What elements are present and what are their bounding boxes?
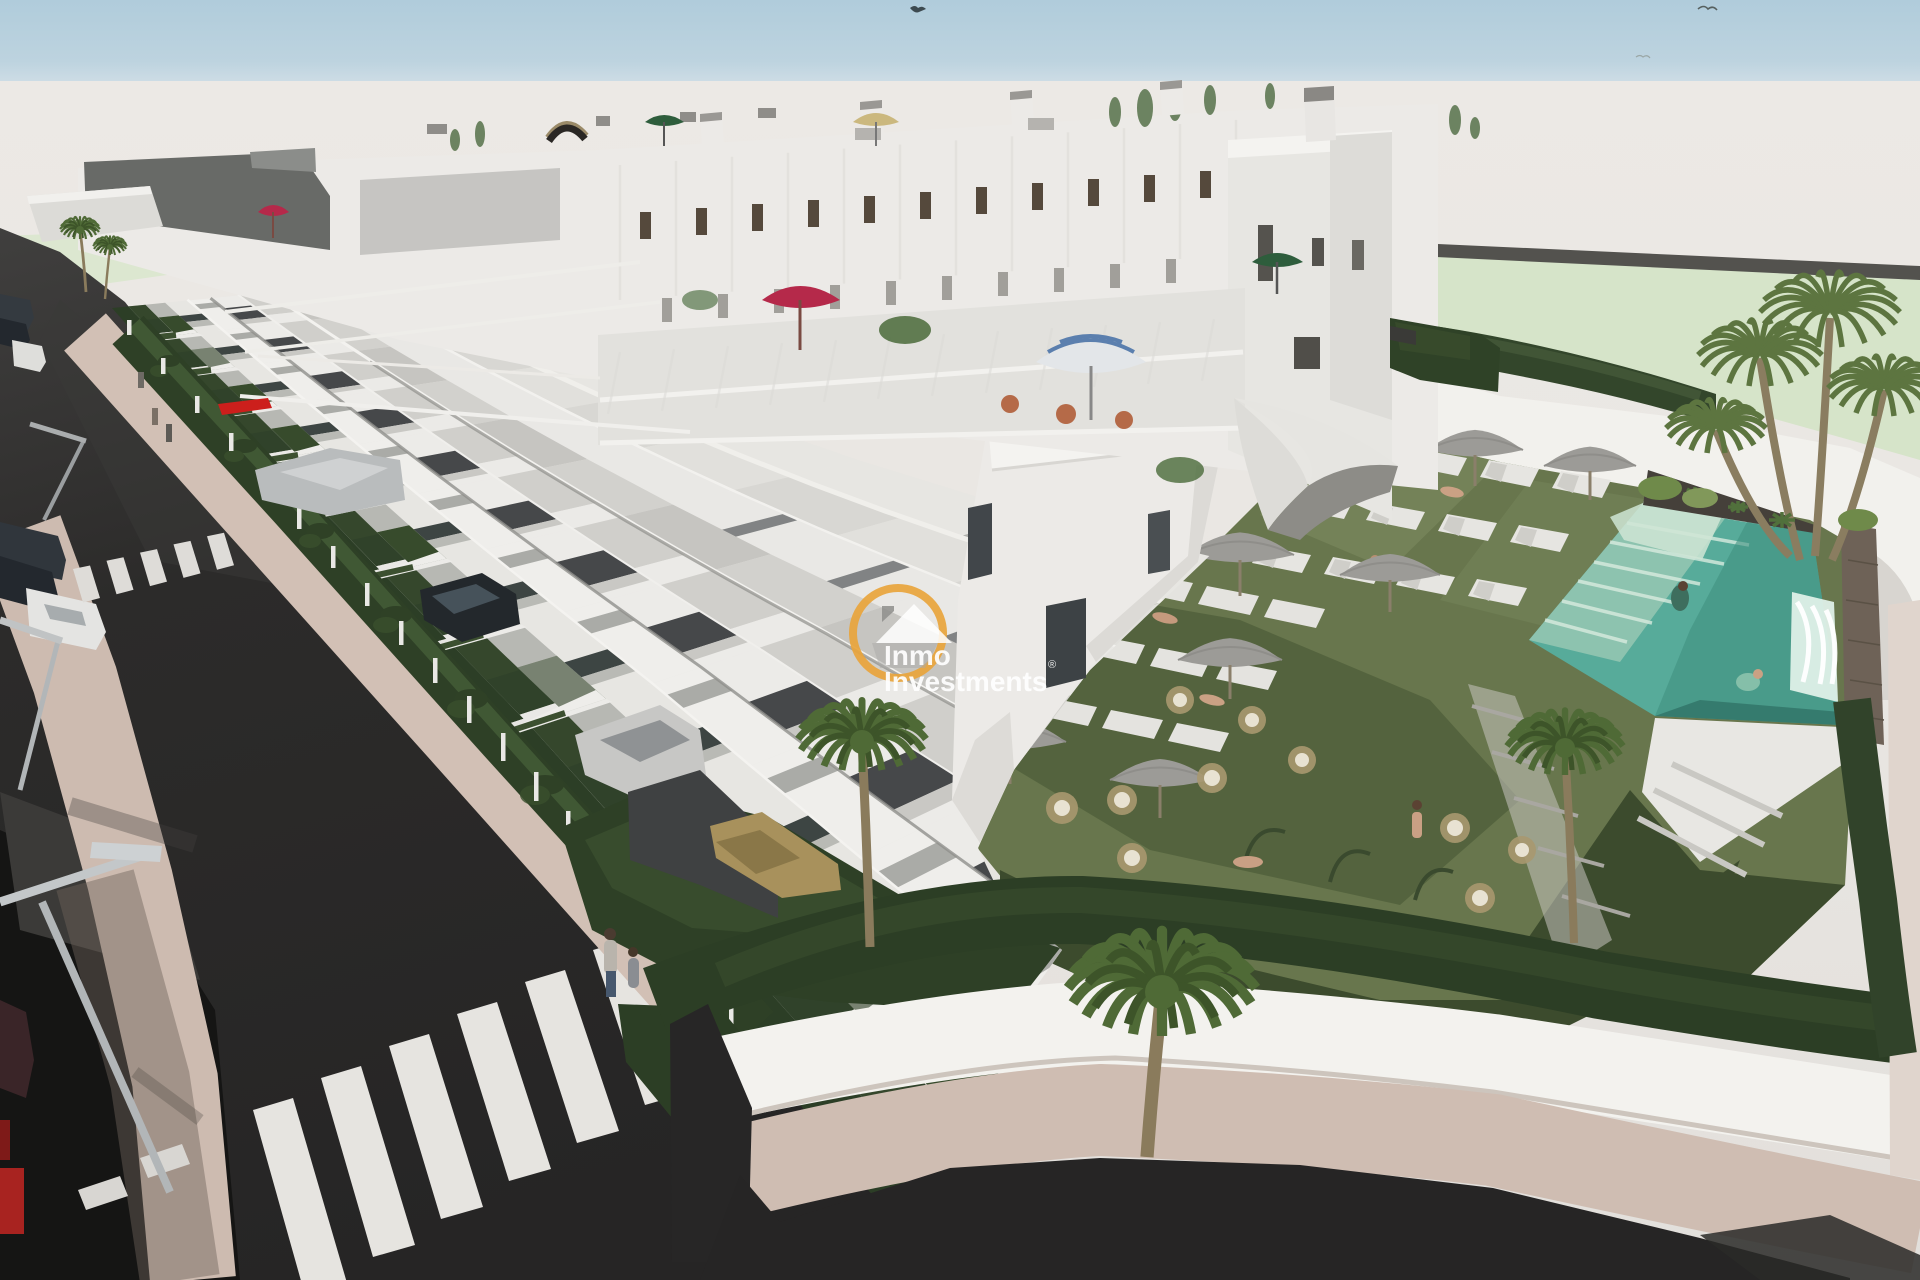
svg-text:Investments: Investments (884, 666, 1047, 697)
svg-text:®: ® (1048, 659, 1056, 671)
